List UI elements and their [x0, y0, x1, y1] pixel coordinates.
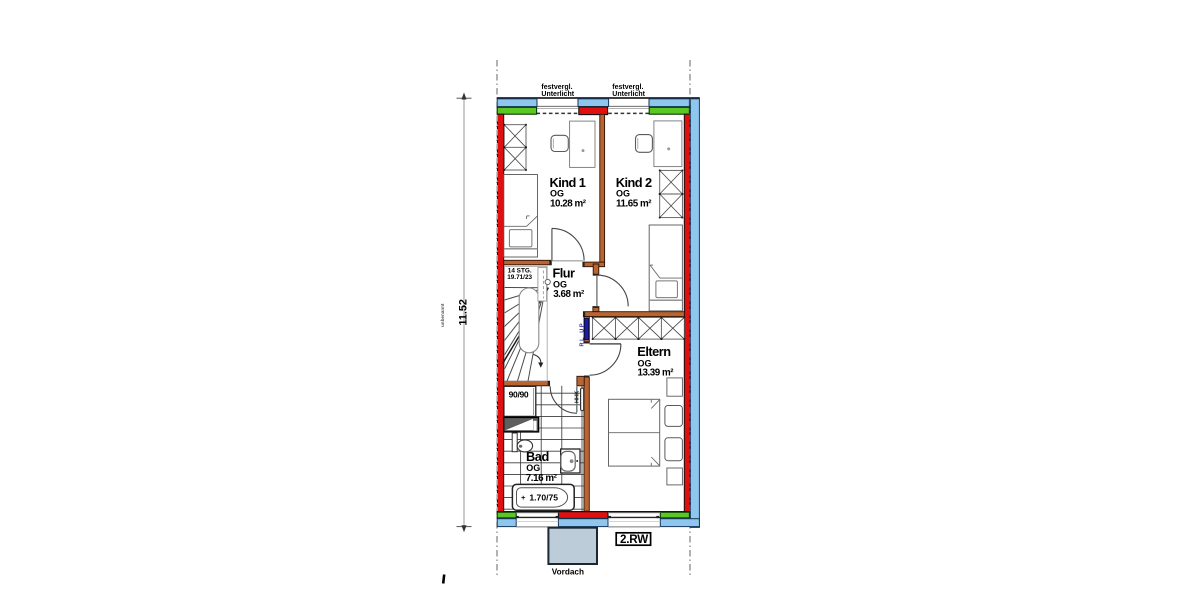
- svg-text:11.65 m²: 11.65 m²: [616, 199, 652, 210]
- svg-text:1.70/75: 1.70/75: [529, 492, 558, 502]
- svg-text:OG: OG: [553, 280, 567, 290]
- svg-text:Eltern: Eltern: [637, 344, 671, 359]
- svg-text:HHK: HHK: [575, 391, 581, 403]
- svg-text:festvergl.: festvergl.: [541, 84, 572, 91]
- svg-text:90/90: 90/90: [509, 389, 529, 399]
- svg-text:Unterlicht: Unterlicht: [612, 91, 645, 98]
- svg-text:Unterlicht: Unterlicht: [541, 91, 574, 98]
- svg-text:7.16 m²: 7.16 m²: [526, 473, 558, 484]
- svg-text:2.RW: 2.RW: [620, 533, 648, 546]
- svg-text:19.71/23: 19.71/23: [507, 274, 532, 281]
- svg-text:OG: OG: [550, 189, 564, 199]
- svg-text:3.68 m²: 3.68 m²: [553, 289, 585, 300]
- svg-text:unbenannt: unbenannt: [440, 303, 445, 327]
- svg-text:11.52: 11.52: [457, 299, 469, 325]
- svg-text:Bad: Bad: [526, 449, 549, 464]
- svg-text:+: +: [521, 493, 526, 502]
- svg-text:10.28 m²: 10.28 m²: [550, 199, 587, 210]
- svg-text:Vordach: Vordach: [552, 567, 584, 576]
- svg-text:OG: OG: [526, 463, 540, 473]
- svg-text:RL UP: RL UP: [580, 322, 586, 347]
- svg-text:festvergl.: festvergl.: [612, 84, 643, 91]
- svg-text:OG: OG: [616, 189, 630, 199]
- svg-text:13.39 m²: 13.39 m²: [638, 368, 675, 379]
- svg-text:Flur: Flur: [553, 266, 576, 280]
